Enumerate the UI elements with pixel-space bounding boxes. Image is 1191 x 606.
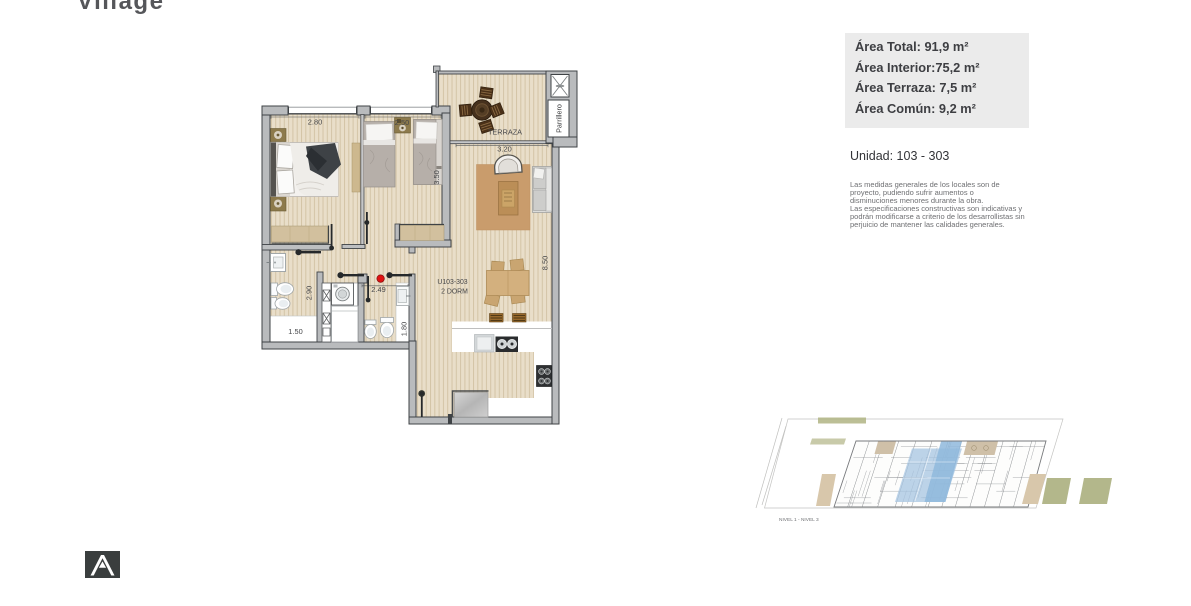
svg-text:U103-303: U103-303: [437, 279, 467, 286]
svg-text:1.80: 1.80: [400, 322, 409, 336]
svg-text:2.49: 2.49: [371, 285, 385, 294]
svg-text:TERRAZA: TERRAZA: [488, 128, 522, 137]
svg-text:1.50: 1.50: [288, 327, 302, 336]
svg-text:Parrillero: Parrillero: [555, 104, 564, 133]
svg-text:3.20: 3.20: [497, 145, 511, 154]
svg-text:8.50: 8.50: [540, 256, 549, 270]
svg-text:2.90: 2.90: [305, 286, 314, 300]
svg-text:2.50: 2.50: [395, 118, 409, 127]
svg-text:3.50: 3.50: [432, 170, 441, 184]
svg-text:2.80: 2.80: [308, 118, 322, 127]
svg-text:NIVEL 1 - NIVEL 3: NIVEL 1 - NIVEL 3: [779, 517, 819, 523]
svg-text:2 DORM: 2 DORM: [441, 289, 468, 296]
